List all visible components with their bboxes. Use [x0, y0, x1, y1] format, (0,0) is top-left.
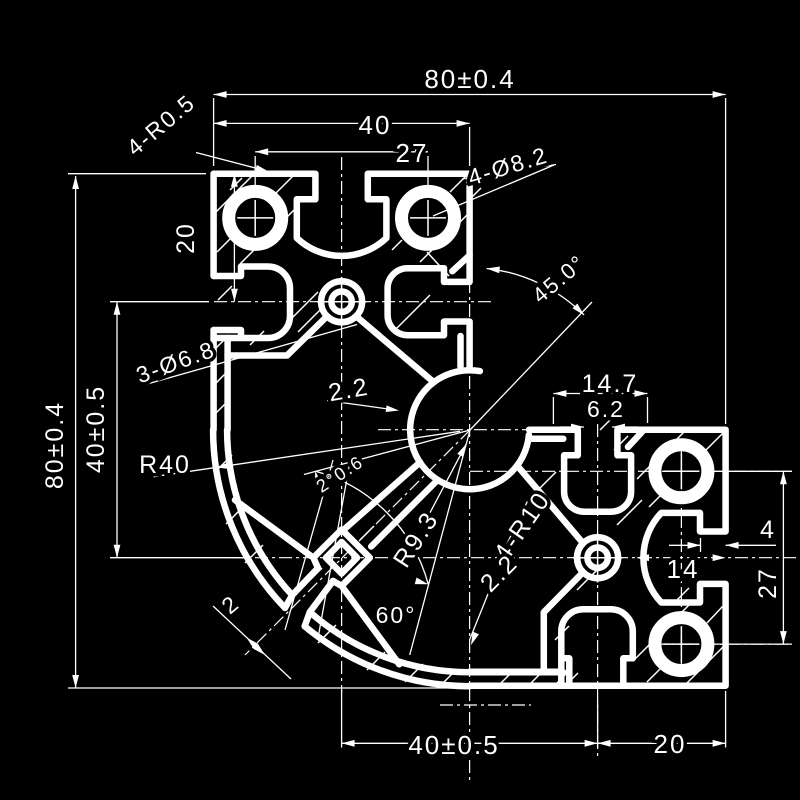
svg-text:14: 14 [667, 554, 700, 584]
svg-text:20: 20 [654, 729, 687, 759]
svg-text:27: 27 [754, 567, 782, 599]
svg-text:40±0.5: 40±0.5 [82, 385, 110, 473]
svg-text:20: 20 [172, 222, 200, 254]
svg-text:80±0.4: 80±0.4 [41, 401, 69, 489]
svg-text:4: 4 [760, 516, 776, 544]
svg-text:60°: 60° [376, 602, 417, 628]
svg-text:6.2: 6.2 [587, 396, 625, 422]
svg-text:40±0.5: 40±0.5 [408, 730, 499, 760]
svg-text:R40: R40 [139, 451, 191, 479]
svg-text:40: 40 [359, 110, 392, 140]
svg-text:80±0.4: 80±0.4 [424, 64, 515, 94]
svg-text:27: 27 [396, 138, 429, 168]
svg-text:14.7: 14.7 [582, 370, 639, 398]
